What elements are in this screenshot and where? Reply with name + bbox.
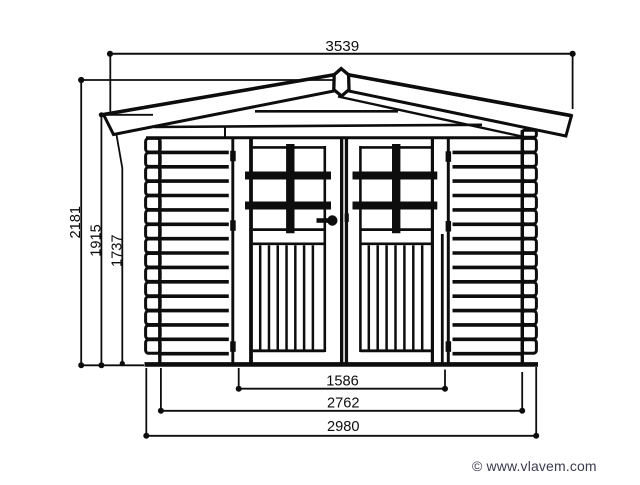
svg-text:1586: 1586 xyxy=(326,374,358,390)
svg-text:2980: 2980 xyxy=(327,419,359,435)
svg-text:3539: 3539 xyxy=(325,38,359,55)
svg-text:2181: 2181 xyxy=(68,206,84,238)
svg-text:2762: 2762 xyxy=(327,395,359,411)
svg-text:1915: 1915 xyxy=(89,224,105,256)
svg-text:1737: 1737 xyxy=(109,234,125,266)
